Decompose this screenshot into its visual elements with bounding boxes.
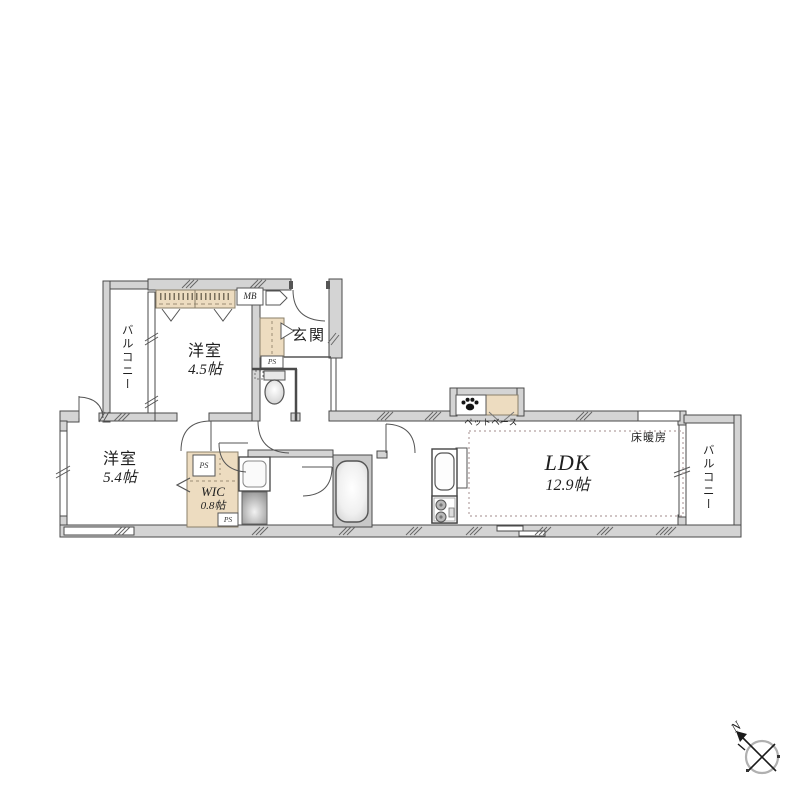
- washroom: [239, 457, 270, 524]
- kitchen: [432, 448, 467, 523]
- ldk-name: LDK: [505, 450, 630, 476]
- wic-size: 0.8帖: [189, 500, 237, 513]
- door-frame-nub: [289, 281, 293, 289]
- toilet-icon: [265, 380, 284, 404]
- bedroom1-name: 洋室: [155, 342, 255, 361]
- ldk-size: 12.9帖: [505, 476, 630, 495]
- ldk-door: [386, 424, 415, 453]
- pet-base-cabinet: [486, 395, 518, 415]
- bedroom2-name: 洋室: [70, 450, 170, 469]
- bathroom: [333, 455, 372, 527]
- floor-heating-label: 床暖房: [618, 432, 680, 445]
- ps-label-wic-bottom: PS: [218, 513, 238, 526]
- kitchen-sink: [435, 453, 454, 490]
- closet-door-marks: [162, 309, 232, 321]
- mb-label: MB: [237, 288, 263, 305]
- bedroom2-label: 洋室 5.4帖: [70, 450, 170, 487]
- wic-name: WIC: [189, 484, 237, 500]
- bedroom2-size: 5.4帖: [70, 469, 170, 487]
- bathroom-door: [302, 467, 332, 496]
- pet-base-label: ペットベース: [459, 417, 523, 427]
- entrance-door-arc: [293, 290, 325, 321]
- ldk-label: LDK 12.9帖: [505, 450, 630, 496]
- toilet-door-arc: [258, 421, 289, 453]
- toilet-tank: [264, 371, 285, 380]
- mb-door-mark: [266, 291, 287, 305]
- walls: [60, 279, 741, 537]
- balcony-right-label: バルコニー: [700, 428, 714, 528]
- floorplan-page: 洋室 4.5帖 洋室 5.4帖 LDK 12.9帖 WIC 0.8帖 玄関 バル…: [0, 0, 800, 800]
- ps-label-wic-top: PS: [193, 455, 215, 476]
- bedroom1-size: 4.5帖: [155, 361, 255, 379]
- entrance-label: 玄関: [285, 327, 333, 345]
- washing-machine-pan: [242, 492, 267, 524]
- balcony-left-label: バルコニー: [119, 300, 133, 415]
- ps-label-entrance: PS: [261, 356, 283, 368]
- door-frame-nub: [326, 281, 330, 289]
- entrance-details: [284, 281, 331, 357]
- bedroom1-door: [181, 421, 211, 451]
- bedroom1-label: 洋室 4.5帖: [155, 342, 255, 379]
- bathtub: [336, 461, 368, 522]
- compass-icon: [736, 731, 780, 773]
- wic-label: WIC 0.8帖: [189, 484, 237, 513]
